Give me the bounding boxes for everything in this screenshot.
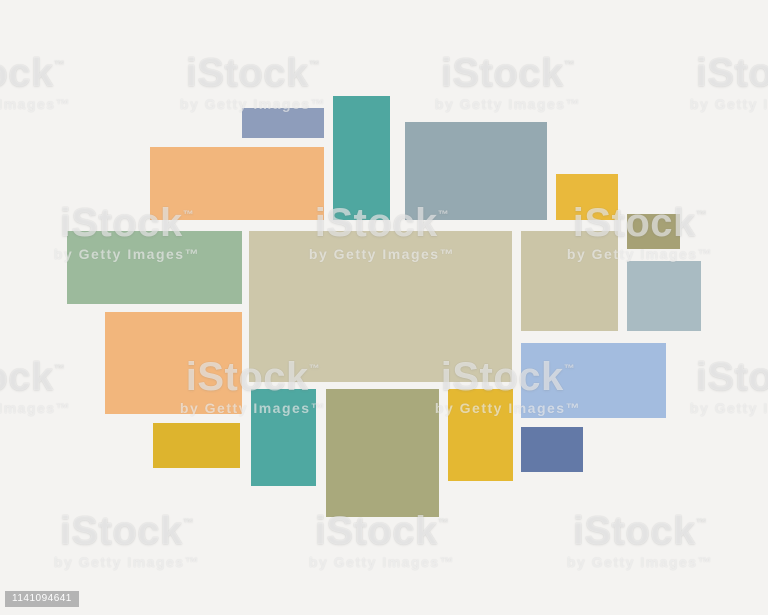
watermark-brand-text: iStock™ (573, 510, 708, 552)
collage-block-center-beige (249, 231, 512, 382)
watermark-trademark-symbol: ™ (696, 209, 708, 221)
watermark-trademark-symbol: ™ (438, 517, 450, 529)
watermark-trademark-symbol: ™ (696, 517, 708, 529)
collage-block-top-olive (627, 214, 680, 249)
collage-block-mid-right-gray-blue (627, 261, 701, 331)
watermark-tile: iStock™by Getty Images™ (54, 510, 200, 570)
watermark-byline-text: by Getty Images™ (690, 400, 768, 416)
watermark-byline-text: by Getty Images™ (690, 96, 768, 112)
collage-block-top-gray-blue (405, 122, 547, 220)
collage-block-mid-left-orange (105, 312, 242, 414)
collage-block-top-slate-blue (242, 108, 324, 138)
watermark-tile: iStock™by Getty Images™ (567, 510, 713, 570)
watermark-brand-text: iStock™ (696, 52, 768, 94)
watermark-byline-text: by Getty Images™ (54, 554, 200, 570)
collage-block-bottom-olive (326, 389, 439, 517)
collage-block-top-teal (333, 96, 390, 220)
watermark-brand-text: iStock™ (696, 356, 768, 398)
watermark-trademark-symbol: ™ (54, 59, 66, 71)
collage-block-bottom-yellow-left (153, 423, 240, 468)
watermark-brand-text: iStock™ (60, 510, 195, 552)
watermark-tile: iStock™by Getty Images™ (690, 356, 768, 416)
watermark-brand-text: iStock™ (186, 52, 321, 94)
watermark-byline-text: by Getty Images™ (0, 96, 71, 112)
collage-block-bottom-yellow-mid (448, 389, 513, 481)
watermark-tile: iStock™by Getty Images™ (0, 52, 71, 112)
watermark-byline-text: by Getty Images™ (309, 554, 455, 570)
collage-block-mid-periwinkle (521, 343, 666, 418)
watermark-trademark-symbol: ™ (564, 59, 576, 71)
watermark-tile: iStock™by Getty Images™ (435, 52, 581, 112)
image-id-badge: 1141094641 (5, 591, 79, 607)
watermark-brand-text: iStock™ (441, 52, 576, 94)
watermark-brand-text: iStock™ (0, 52, 65, 94)
watermark-tile: iStock™by Getty Images™ (690, 52, 768, 112)
collage-block-top-orange (150, 147, 324, 220)
watermark-trademark-symbol: ™ (54, 363, 66, 375)
stock-image-preview: iStock™by Getty Images™iStock™by Getty I… (0, 0, 768, 615)
collage-block-mid-sage-green (67, 231, 242, 304)
watermark-byline-text: by Getty Images™ (0, 400, 71, 416)
watermark-trademark-symbol: ™ (183, 517, 195, 529)
collage-block-top-yellow (556, 174, 618, 220)
watermark-trademark-symbol: ™ (309, 59, 321, 71)
watermark-tile: iStock™by Getty Images™ (0, 356, 71, 416)
watermark-tile: iStock™by Getty Images™ (309, 510, 455, 570)
watermark-byline-text: by Getty Images™ (435, 96, 581, 112)
collage-block-bottom-slate-blue (521, 427, 583, 472)
watermark-byline-text: by Getty Images™ (567, 554, 713, 570)
watermark-brand-text: iStock™ (0, 356, 65, 398)
collage-block-bottom-teal (251, 389, 316, 486)
watermark-tile: iStock™by Getty Images™ (180, 52, 326, 112)
collage-block-mid-right-beige (521, 231, 618, 331)
